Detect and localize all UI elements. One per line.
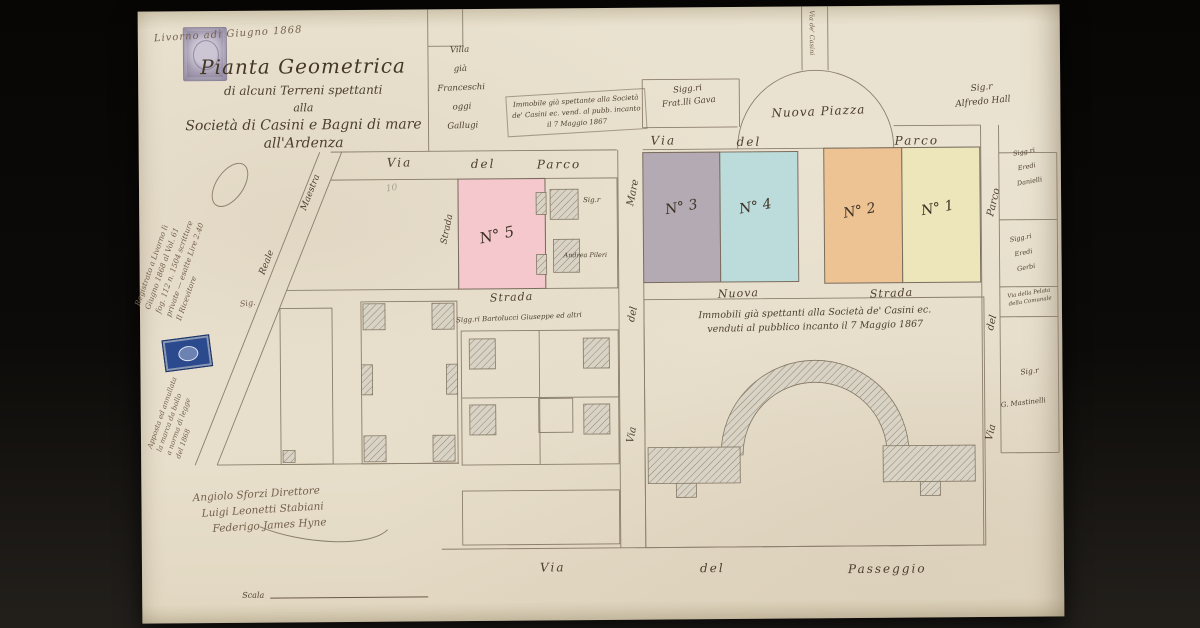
arch-building xyxy=(720,360,909,455)
plot-n4-shape xyxy=(720,151,799,282)
street-nuova-strada1: Strada xyxy=(490,290,534,305)
eredi2-owner-label: Sigg.ri Eredi Gerbi xyxy=(996,227,1051,280)
scan-background: Livorno adì Giugno 1868 Registrato a Liv… xyxy=(0,0,1200,628)
page-title: Pianta Geometrica xyxy=(158,53,448,79)
scale-label: Scala xyxy=(242,591,264,600)
street-nuova-strada2: Strada xyxy=(870,286,914,301)
title-block: Pianta Geometrica di alcuni Terreni spet… xyxy=(158,53,449,152)
street-nuova-nuova: Nuova xyxy=(718,286,760,301)
eredi1-owner-label: Sigg.ri Eredi Danielli xyxy=(999,141,1054,194)
villa-owner-label: Villa già Franceschi oggi Gallugi xyxy=(419,39,503,137)
andrea-owner-label: Andrea Pileri xyxy=(564,251,608,259)
plot-n3-shape xyxy=(643,152,721,283)
paper: Livorno adì Giugno 1868 Registrato a Liv… xyxy=(138,4,1065,623)
street-parco-left-via: Via xyxy=(387,155,413,169)
street-parco-left-parco: Parco xyxy=(537,157,581,171)
sig-left-label: Sig. xyxy=(239,298,256,309)
street-parco-left-del: del xyxy=(471,157,496,171)
sold-note-small: Immobile già spettante alla Società de' … xyxy=(505,88,647,137)
street-casini-vertical: Via de' Casini xyxy=(808,10,816,55)
street-parco-right-parco: Parco xyxy=(895,133,939,147)
pencil-note: 10 xyxy=(385,183,398,195)
street-passeggio-del: del xyxy=(700,561,725,575)
sig-square-label: Sig.r xyxy=(583,196,600,204)
street-passeggio-via: Via xyxy=(540,560,566,574)
street-parco-right-del: del xyxy=(737,135,762,149)
street-passeggio-passeggio: Passeggio xyxy=(848,561,927,576)
street-parco-right-via: Via xyxy=(651,133,677,147)
